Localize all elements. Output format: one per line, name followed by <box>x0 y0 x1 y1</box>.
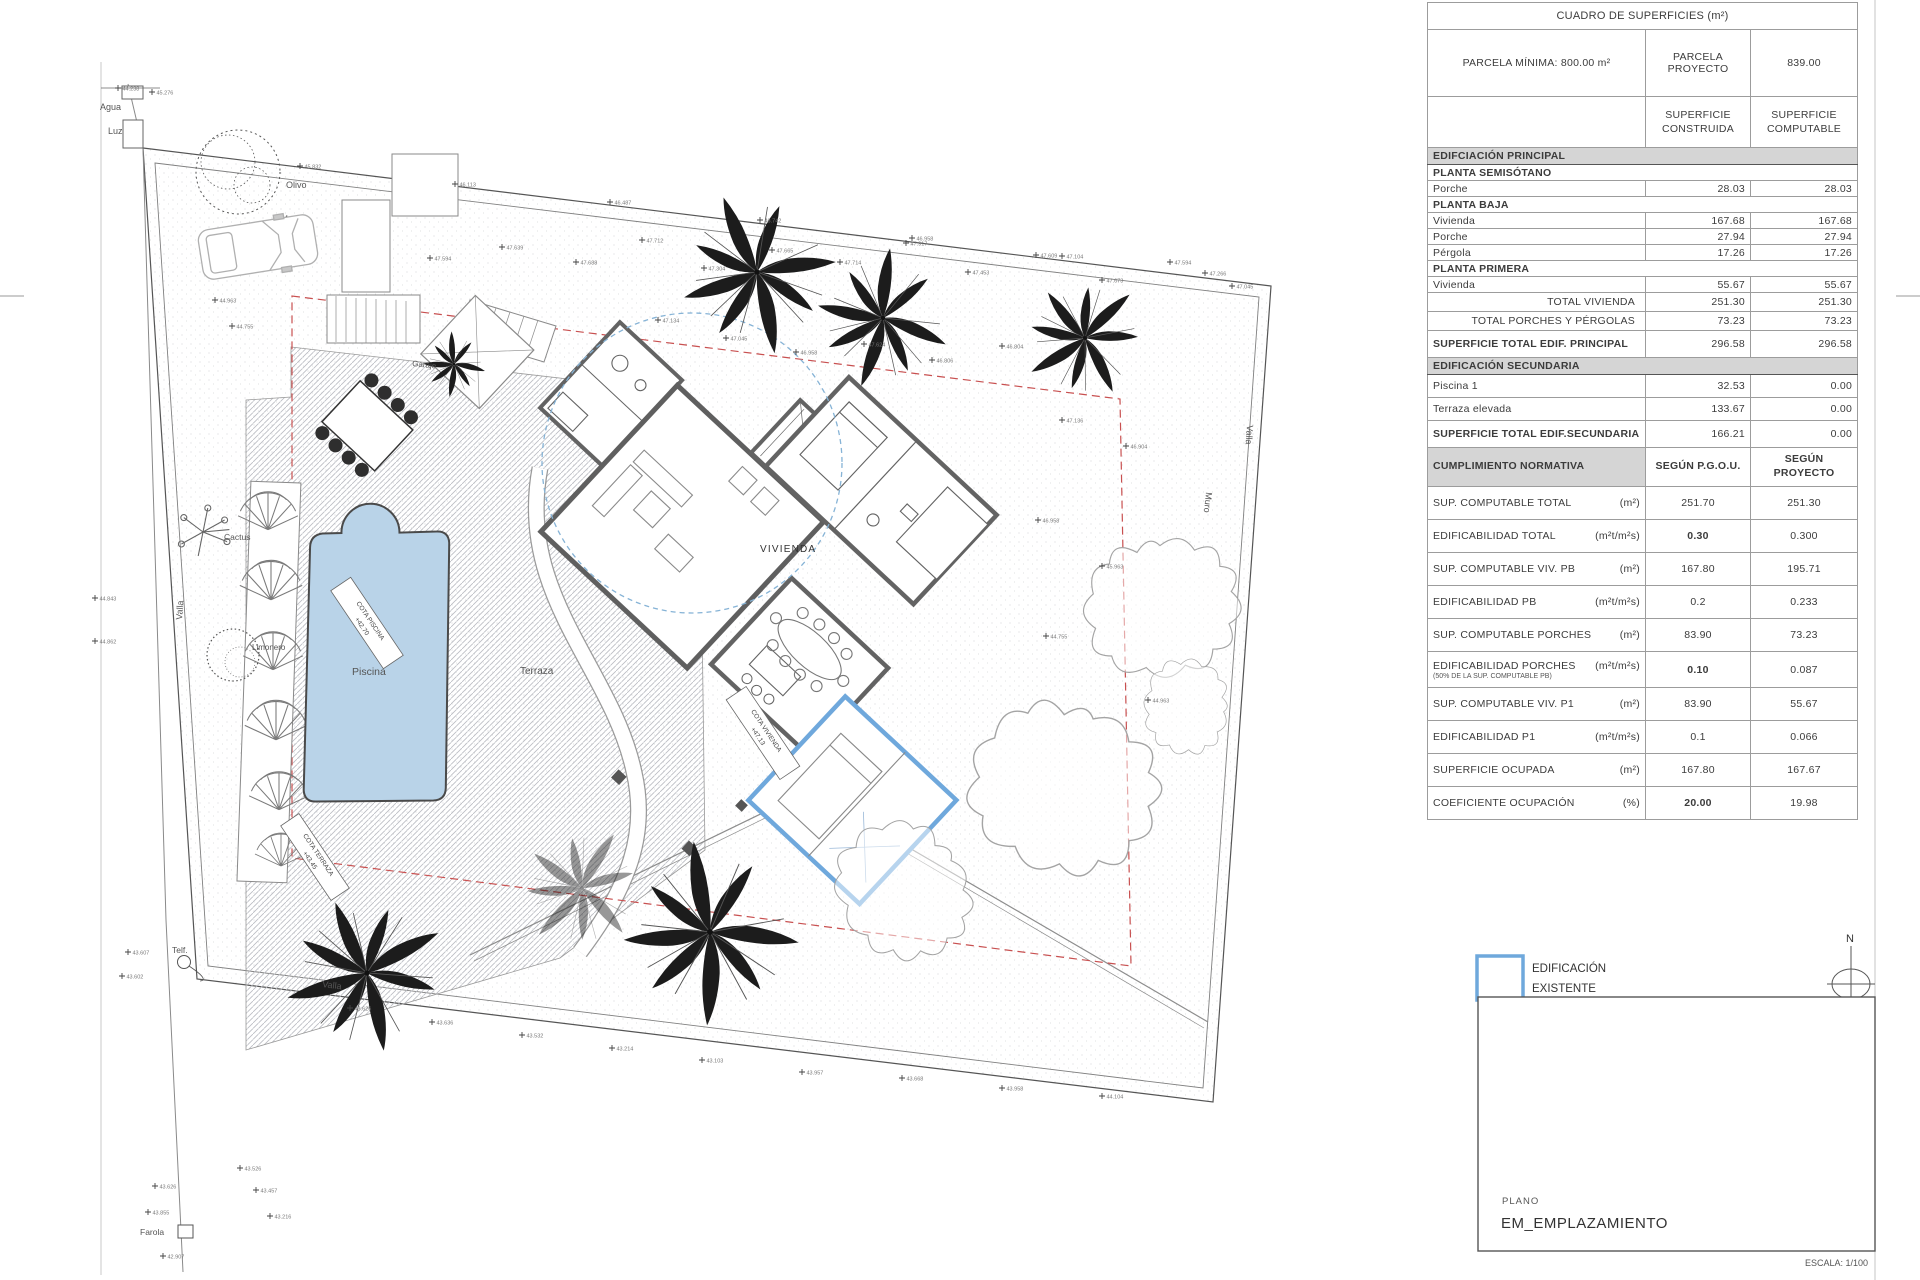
svg-text:44.963: 44.963 <box>220 299 237 305</box>
svg-text:44.862: 44.862 <box>100 640 117 646</box>
svg-text:45.276: 45.276 <box>157 91 174 97</box>
svg-text:47.594: 47.594 <box>435 257 452 263</box>
label-valla-right: Valla <box>1244 425 1255 445</box>
svg-text:43.532: 43.532 <box>527 1034 544 1040</box>
svg-text:46.958: 46.958 <box>801 351 818 357</box>
svg-text:44.238: 44.238 <box>123 87 140 93</box>
normativa-row: EDIFICABILIDAD TOTAL(m²t/m²s)0.300.300 <box>1428 520 1858 553</box>
svg-text:44.104: 44.104 <box>1107 1095 1124 1101</box>
normativa-row: COEFICIENTE OCUPACIÓN(%)20.0019.98 <box>1428 787 1858 820</box>
svg-text:45.963: 45.963 <box>1107 565 1124 571</box>
normativa-row: EDIFICABILIDAD PORCHES(m²t/m²s)(50% DE L… <box>1428 652 1858 688</box>
svg-text:46.806: 46.806 <box>937 359 954 365</box>
normativa-row: SUP. COMPUTABLE VIV. PB(m²)167.80195.71 <box>1428 553 1858 586</box>
label-piscina: Piscina <box>352 666 386 678</box>
svg-text:47.688: 47.688 <box>581 261 598 267</box>
svg-text:47.714: 47.714 <box>845 261 862 267</box>
label-telf: Telf. <box>172 945 188 955</box>
svg-text:43.216: 43.216 <box>275 1215 292 1221</box>
svg-text:43.626: 43.626 <box>160 1185 177 1191</box>
section-band: EDIFCIACIÓN PRINCIPAL <box>1428 148 1858 165</box>
svg-text:43.457: 43.457 <box>261 1189 278 1195</box>
svg-text:43.636: 43.636 <box>437 1021 454 1027</box>
normativa-row: SUP. COMPUTABLE VIV. P1(m²)83.9055.67 <box>1428 688 1858 721</box>
label-luz: Luz <box>108 126 123 136</box>
planta-header: PLANTA SEMISÓTANO <box>1428 165 1858 181</box>
label-olivo: Olivo <box>286 180 307 190</box>
lamp-post-icon <box>178 1225 193 1238</box>
svg-text:47.917: 47.917 <box>911 242 928 248</box>
table-title-row: CUADRO DE SUPERFICIES (m²) <box>1428 3 1858 30</box>
surface-table-panel: CUADRO DE SUPERFICIES (m²) PARCELA MÍNIM… <box>1427 2 1857 820</box>
svg-text:47.665: 47.665 <box>777 249 794 255</box>
svg-text:47.045: 47.045 <box>1237 285 1254 291</box>
svg-text:43.958: 43.958 <box>1007 1087 1024 1093</box>
svg-text:43.526: 43.526 <box>245 1167 262 1173</box>
svg-text:45.832: 45.832 <box>305 165 322 171</box>
legend-line2: EXISTENTE <box>1532 983 1596 995</box>
svg-text:43.602: 43.602 <box>127 975 144 981</box>
plano-value: EM_EMPLAZAMIENTO <box>1501 1215 1668 1232</box>
grand-total-row: SUPERFICIE TOTAL EDIF. PRINCIPAL296.5829… <box>1428 331 1858 358</box>
svg-text:47.609: 47.609 <box>1041 254 1058 260</box>
svg-text:46.113: 46.113 <box>460 183 476 189</box>
planta-header: PLANTA BAJA <box>1428 197 1858 213</box>
svg-text:43.668: 43.668 <box>907 1077 924 1083</box>
table-row: Porche28.0328.03 <box>1428 181 1858 197</box>
table-row: Terraza elevada133.670.00 <box>1428 398 1858 421</box>
total-row: TOTAL VIVIENDA251.30251.30 <box>1428 293 1858 312</box>
svg-text:43.855: 43.855 <box>153 1211 170 1217</box>
legend-line1: EDIFICACIÓN <box>1532 962 1606 975</box>
svg-text:46.742: 46.742 <box>765 219 782 225</box>
svg-text:44.843: 44.843 <box>100 597 117 603</box>
svg-text:47.453: 47.453 <box>973 271 990 277</box>
label-terraza: Terraza <box>520 666 554 677</box>
svg-text:47.134: 47.134 <box>663 319 680 325</box>
svg-text:44.755: 44.755 <box>1051 635 1068 641</box>
label-muro-right: Muro <box>1202 492 1214 513</box>
surface-table: CUADRO DE SUPERFICIES (m²) PARCELA MÍNIM… <box>1427 2 1858 820</box>
normativa-row: SUP. COMPUTABLE PORCHES(m²)83.9073.23 <box>1428 619 1858 652</box>
title-block: PLANO EM_EMPLAZAMIENTO ESCALA: 1/100 <box>1478 997 1875 1268</box>
label-valla-left: Valla <box>174 600 185 620</box>
table-row: Vivienda55.6755.67 <box>1428 277 1858 293</box>
normativa-row: EDIFICABILIDAD P1(m²t/m²s)0.10.066 <box>1428 721 1858 754</box>
col-computable: SUPERFICIECOMPUTABLE <box>1751 97 1858 148</box>
svg-text:46.487: 46.487 <box>615 201 632 207</box>
parcela-minima: PARCELA MÍNIMA: 800.00 m² <box>1428 30 1646 97</box>
normativa-row: EDIFICABILIDAD PB(m²t/m²s)0.20.233 <box>1428 586 1858 619</box>
planta-header: PLANTA PRIMERA <box>1428 261 1858 277</box>
utility-boxes <box>101 86 160 148</box>
parcela-row: PARCELA MÍNIMA: 800.00 m² PARCELAPROYECT… <box>1428 30 1858 97</box>
table-title: CUADRO DE SUPERFICIES (m²) <box>1428 3 1858 30</box>
label-limonero: Limonero <box>252 643 286 652</box>
svg-text:47.594: 47.594 <box>1175 261 1192 267</box>
label-cactus: Cactus <box>224 532 250 542</box>
svg-text:44.963: 44.963 <box>1153 699 1170 705</box>
svg-text:43.214: 43.214 <box>617 1047 634 1053</box>
svg-text:46.904: 46.904 <box>1131 445 1148 451</box>
svg-text:42.907: 42.907 <box>168 1255 185 1261</box>
svg-text:43.957: 43.957 <box>807 1071 824 1077</box>
svg-text:47.104: 47.104 <box>1067 255 1084 261</box>
svg-text:47.624: 47.624 <box>869 343 886 349</box>
svg-text:47.304: 47.304 <box>709 267 726 273</box>
total-row: TOTAL PORCHES Y PÉRGOLAS73.2373.23 <box>1428 312 1858 331</box>
svg-text:46.958: 46.958 <box>1043 519 1060 525</box>
svg-text:47.712: 47.712 <box>647 239 664 245</box>
col-construida: SUPERFICIECONSTRUIDA <box>1646 97 1751 148</box>
label-farola: Farola <box>140 1227 164 1237</box>
svg-text:47.639: 47.639 <box>507 246 524 252</box>
svg-text:47.673: 47.673 <box>1107 279 1124 285</box>
plano-label: PLANO <box>1502 1196 1539 1207</box>
drawing-sheet: Agua Luz Olivo Muro <box>0 0 1920 1280</box>
label-agua: Agua <box>100 102 121 112</box>
north-label: N <box>1846 933 1854 945</box>
svg-text:44.755: 44.755 <box>237 325 254 331</box>
svg-text:43.607: 43.607 <box>133 951 150 957</box>
label-vivienda: VIVIENDA <box>760 544 816 555</box>
section-band: EDIFICACIÓN SECUNDARIA <box>1428 358 1858 375</box>
table-row: Pérgola17.2617.26 <box>1428 245 1858 261</box>
table-row: Vivienda167.68167.68 <box>1428 213 1858 229</box>
normativa-row: SUPERFICIE OCUPADA(m²)167.80167.67 <box>1428 754 1858 787</box>
svg-text:43.103: 43.103 <box>707 1059 724 1065</box>
svg-text:46.804: 46.804 <box>1007 345 1024 351</box>
svg-text:47.266: 47.266 <box>1210 272 1227 278</box>
normativa-row: SUP. COMPUTABLE TOTAL(m²)251.70251.30 <box>1428 487 1858 520</box>
legend: EDIFICACIÓN EXISTENTE <box>1477 956 1606 1000</box>
column-header-row: SUPERFICIECONSTRUIDA SUPERFICIECOMPUTABL… <box>1428 97 1858 148</box>
table-row: Piscina 132.530.00 <box>1428 375 1858 398</box>
grand-total-row: SUPERFICIE TOTAL EDIF.SECUNDARIA166.210.… <box>1428 421 1858 448</box>
svg-text:47.136: 47.136 <box>1067 419 1084 425</box>
table-row: Porche27.9427.94 <box>1428 229 1858 245</box>
legend-existing-swatch <box>1477 956 1523 1000</box>
escala-value: ESCALA: 1/100 <box>1805 1258 1868 1268</box>
svg-text:43.626: 43.626 <box>355 1007 372 1013</box>
normativa-header-row: CUMPLIMIENTO NORMATIVA SEGÚN P.G.O.U. SE… <box>1428 448 1858 487</box>
svg-text:47.045: 47.045 <box>731 337 748 343</box>
parcela-value: 839.00 <box>1751 30 1858 97</box>
